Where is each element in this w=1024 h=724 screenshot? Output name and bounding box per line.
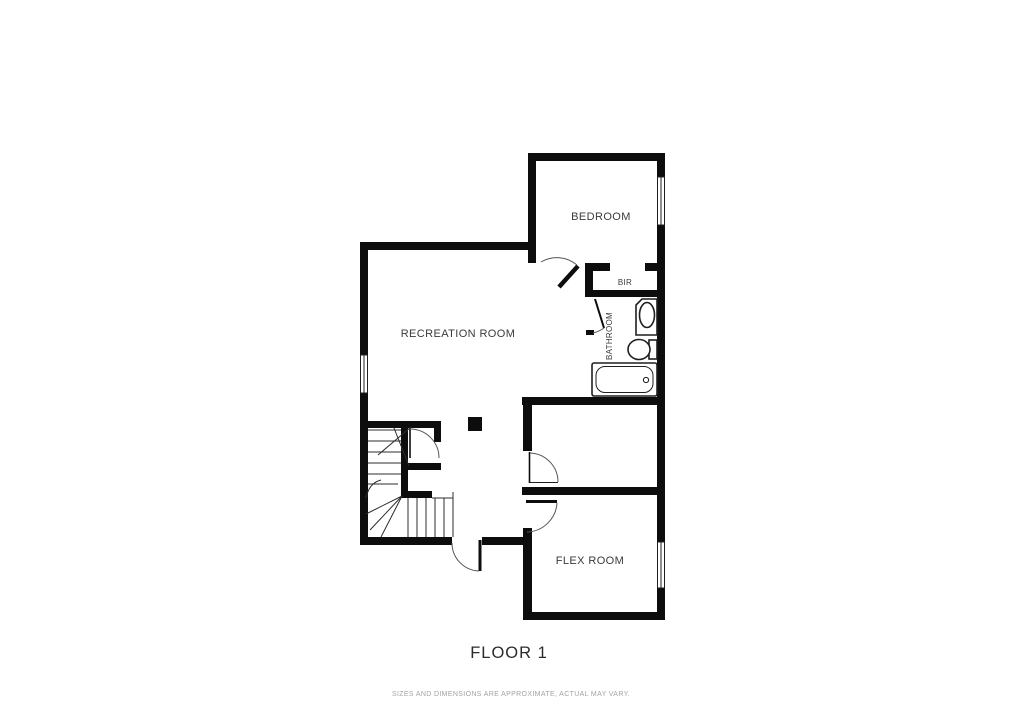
column bbox=[468, 417, 482, 431]
flex-room-door bbox=[526, 502, 557, 533]
bathtub bbox=[592, 363, 657, 396]
bir-label: BIR bbox=[618, 278, 632, 287]
flex-window bbox=[658, 542, 665, 588]
recreation-exit-door bbox=[452, 540, 480, 571]
flex-room-label: FLEX ROOM bbox=[556, 555, 624, 567]
recreation-room-label: RECREATION ROOM bbox=[401, 328, 516, 340]
recreation-window bbox=[361, 355, 368, 393]
disclaimer-text: SIZES AND DIMENSIONS ARE APPROXIMATE, AC… bbox=[392, 691, 630, 698]
bedroom-door bbox=[541, 258, 578, 287]
doors bbox=[410, 258, 604, 571]
floor-plan: BEDROOM BIR BATHROOM RECREATION ROOM FLE… bbox=[0, 0, 1024, 724]
floor-plan-page: BEDROOM BIR BATHROOM RECREATION ROOM FLE… bbox=[0, 0, 1024, 724]
bedroom-window bbox=[658, 177, 665, 225]
bathroom-fixtures bbox=[592, 299, 657, 396]
bedroom-label: BEDROOM bbox=[571, 211, 631, 223]
footer: FLOOR 1 SIZES AND DIMENSIONS ARE APPROXI… bbox=[392, 644, 630, 698]
toilet bbox=[628, 340, 657, 360]
bathroom-label: BATHROOM bbox=[605, 312, 614, 360]
bathroom-door bbox=[593, 299, 604, 333]
floor-title: FLOOR 1 bbox=[470, 644, 548, 662]
sink bbox=[636, 299, 657, 335]
vestibule-door bbox=[530, 452, 559, 483]
